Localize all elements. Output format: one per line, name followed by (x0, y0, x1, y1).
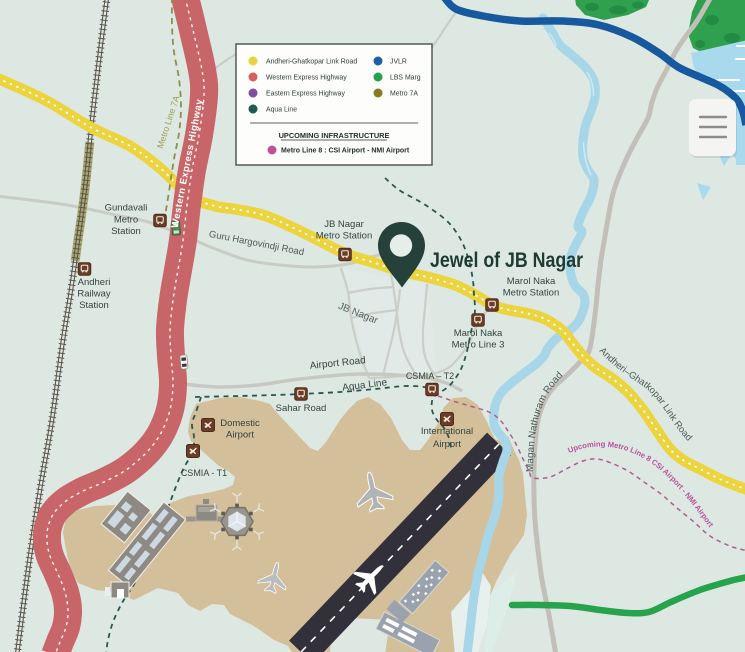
svg-text:Marol NakaMetro Line 3: Marol NakaMetro Line 3 (452, 328, 505, 351)
svg-text:Eastern Express Highway: Eastern Express Highway (266, 91, 345, 98)
svg-text:JB NagarMetro Station: JB NagarMetro Station (316, 219, 373, 242)
svg-text:UPCOMING INFRASTRUCTURE: UPCOMING INFRASTRUCTURE (279, 131, 390, 140)
svg-text:Aqua Line: Aqua Line (266, 107, 297, 114)
svg-text:Marol NakaMetro Station: Marol NakaMetro Station (503, 276, 560, 299)
svg-text:Western Express Highway: Western Express Highway (266, 75, 347, 82)
svg-text:Sahar Road: Sahar Road (276, 403, 327, 414)
svg-text:LBS Marg: LBS Marg (390, 75, 421, 82)
svg-text:CSMIA - T1: CSMIA - T1 (181, 468, 227, 478)
svg-text:CSMIA – T2: CSMIA – T2 (406, 371, 454, 381)
svg-text:AndheriRailwayStation: AndheriRailwayStation (77, 277, 111, 311)
svg-text:JVLR: JVLR (390, 59, 407, 66)
svg-text:Jewel of JB Nagar: Jewel of JB Nagar (430, 248, 584, 272)
svg-text:Metro 7A: Metro 7A (390, 91, 418, 98)
svg-text:Andheri-Ghatkopar Link Road: Andheri-Ghatkopar Link Road (266, 59, 357, 66)
svg-text:Metro Line 8 : CSI Airport - N: Metro Line 8 : CSI Airport - NMI Airport (281, 148, 410, 155)
